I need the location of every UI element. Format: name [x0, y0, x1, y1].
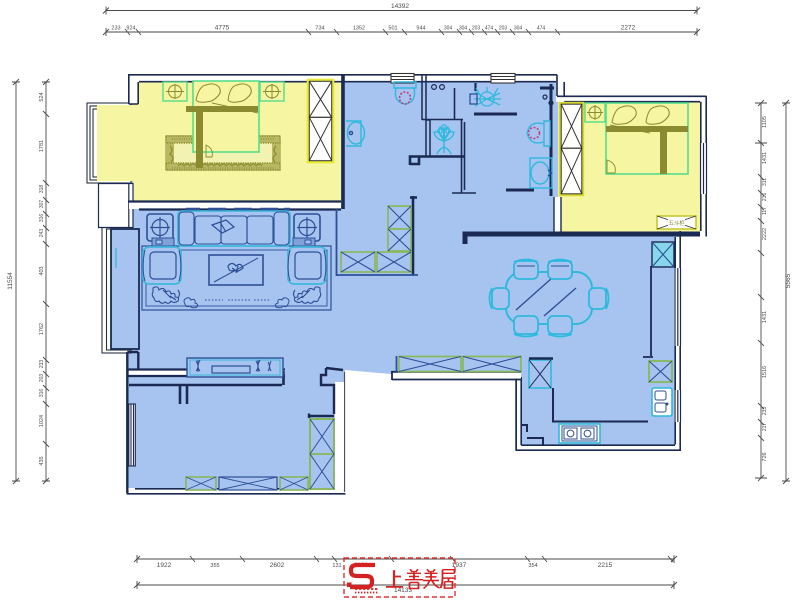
- svg-text:474: 474: [537, 26, 546, 32]
- svg-text:203: 203: [499, 26, 508, 32]
- svg-text:4775: 4775: [215, 25, 230, 32]
- svg-text:1024: 1024: [39, 415, 45, 427]
- svg-text:216: 216: [762, 193, 768, 202]
- svg-text:355: 355: [210, 563, 219, 569]
- svg-text:924: 924: [126, 26, 135, 32]
- svg-text:233: 233: [111, 26, 120, 32]
- svg-text:524: 524: [39, 92, 45, 101]
- svg-text:131: 131: [332, 563, 341, 569]
- svg-text:203: 203: [39, 374, 45, 383]
- svg-text:1762: 1762: [39, 323, 45, 335]
- svg-text:2272: 2272: [621, 25, 636, 32]
- svg-text:14392: 14392: [391, 3, 409, 10]
- svg-text:233: 233: [762, 407, 768, 416]
- svg-text:1516: 1516: [762, 366, 768, 378]
- svg-text:316: 316: [39, 389, 45, 398]
- svg-text:304: 304: [514, 26, 523, 32]
- svg-text:1431: 1431: [762, 311, 768, 323]
- svg-text:1352: 1352: [353, 26, 365, 32]
- svg-text:1922: 1922: [157, 562, 172, 569]
- svg-text:1431: 1431: [762, 152, 768, 164]
- svg-text:307: 307: [39, 200, 45, 209]
- svg-text:243: 243: [39, 229, 45, 238]
- svg-text:1105: 1105: [762, 116, 768, 128]
- svg-text:435: 435: [39, 456, 45, 465]
- svg-text:501: 501: [388, 26, 397, 32]
- svg-text:304: 304: [459, 26, 468, 32]
- svg-text:217: 217: [762, 423, 768, 432]
- svg-text:726: 726: [762, 452, 768, 461]
- svg-text:311: 311: [762, 178, 768, 186]
- svg-text:五斗柜: 五斗柜: [668, 219, 685, 227]
- svg-text:5565: 5565: [785, 273, 792, 288]
- svg-text:1781: 1781: [39, 140, 45, 152]
- svg-text:304: 304: [444, 26, 453, 32]
- svg-text:318: 318: [39, 185, 45, 194]
- svg-text:203: 203: [472, 26, 481, 32]
- svg-text:354: 354: [528, 563, 537, 569]
- svg-text:1937: 1937: [452, 562, 467, 569]
- svg-text:316: 316: [39, 214, 45, 223]
- svg-text:2602: 2602: [270, 562, 285, 569]
- svg-text:734: 734: [315, 26, 324, 32]
- svg-text:944: 944: [416, 26, 425, 32]
- svg-text:2215: 2215: [598, 562, 613, 569]
- svg-text:117: 117: [762, 207, 768, 215]
- svg-text:11554: 11554: [7, 272, 14, 290]
- svg-text:403: 403: [39, 266, 45, 275]
- svg-text:233: 233: [39, 360, 45, 369]
- svg-text:2222: 2222: [762, 228, 768, 240]
- svg-text:474: 474: [485, 26, 494, 32]
